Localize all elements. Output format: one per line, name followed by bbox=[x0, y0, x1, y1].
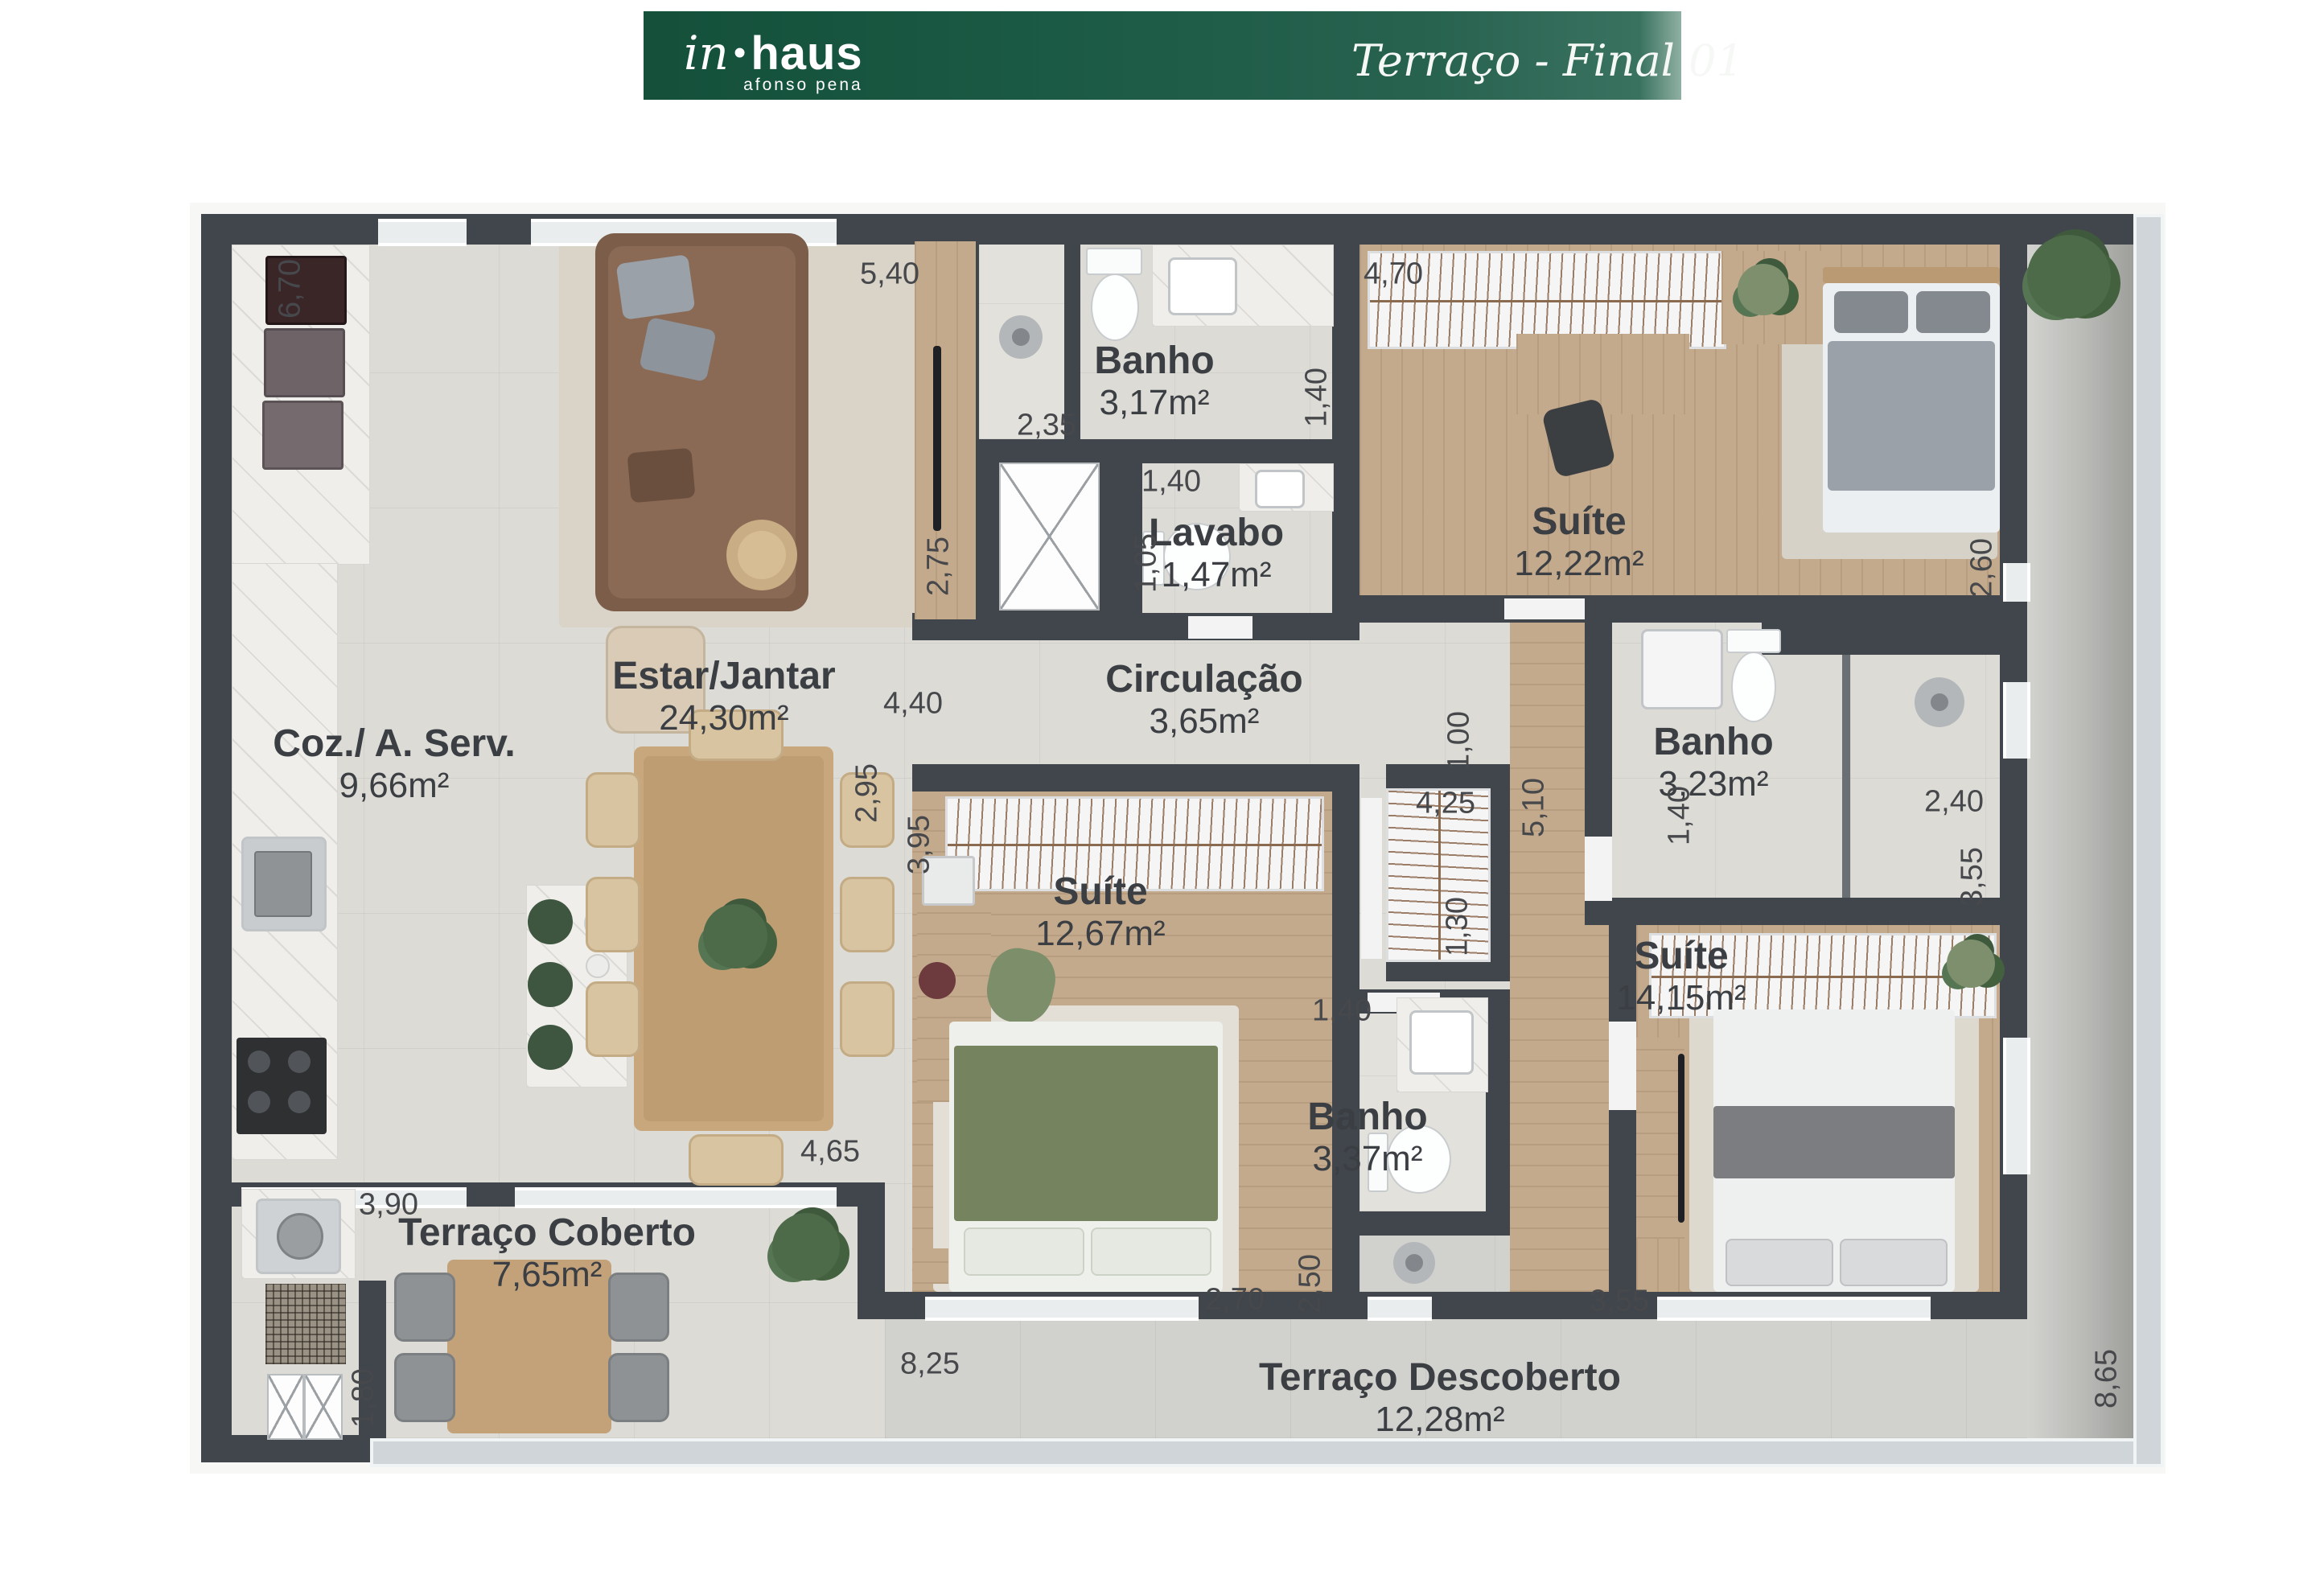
sliding-door bbox=[515, 1187, 837, 1208]
wall bbox=[1359, 595, 2000, 623]
dimension-label: 6,70 bbox=[274, 259, 308, 319]
room-label-bath3: Banho 3,37m² bbox=[1307, 1096, 1427, 1179]
room-label-suite2: Suíte 12,67m² bbox=[1035, 870, 1165, 954]
nightstand bbox=[913, 1248, 948, 1284]
bath2-sink bbox=[1641, 629, 1723, 709]
pocket-door bbox=[1361, 798, 1382, 959]
wall bbox=[1359, 1211, 1510, 1236]
dining-chair bbox=[840, 877, 895, 952]
sliding-door bbox=[925, 1297, 1199, 1321]
dimension-label: 1,40 bbox=[1141, 465, 1201, 500]
side-balcony-floor bbox=[2027, 245, 2133, 1438]
room-area: 3,65m² bbox=[1105, 701, 1302, 742]
room-label-open-terrace: Terraço Descoberto 12,28m² bbox=[1259, 1356, 1621, 1440]
tableware bbox=[586, 954, 610, 978]
wall bbox=[1762, 623, 2000, 655]
plant bbox=[1738, 264, 1789, 315]
door-opening bbox=[1609, 1022, 1636, 1110]
bath3-sink bbox=[1409, 1010, 1474, 1075]
dimension-label: 2,75 bbox=[922, 537, 956, 596]
window bbox=[2003, 682, 2030, 759]
dimension-label: 2,50 bbox=[1294, 1254, 1328, 1314]
appliance bbox=[262, 401, 343, 470]
sofa-pillow bbox=[616, 254, 696, 320]
bed-pillow bbox=[1834, 291, 1908, 333]
tv bbox=[933, 346, 941, 531]
dimension-label: 1,40 bbox=[1300, 368, 1335, 427]
dimension-label: 3,95 bbox=[903, 815, 937, 874]
toilet bbox=[1726, 629, 1781, 653]
shower-head bbox=[1915, 677, 1964, 727]
bush-plant bbox=[772, 1213, 840, 1281]
door-opening bbox=[1585, 837, 1612, 901]
washer bbox=[265, 1284, 346, 1364]
room-area: 3,17m² bbox=[1094, 383, 1214, 423]
room-name: Coz./ A. Serv. bbox=[273, 722, 515, 766]
vase-plant bbox=[919, 962, 956, 999]
shower-drain bbox=[1012, 328, 1030, 346]
shower-head bbox=[1393, 1242, 1435, 1284]
wardrobe-rod bbox=[948, 844, 1322, 846]
desk bbox=[1516, 334, 1689, 414]
window bbox=[2003, 563, 2030, 602]
wall bbox=[201, 214, 232, 1462]
bar-stool bbox=[528, 899, 573, 944]
room-name: Lavabo bbox=[1149, 512, 1284, 555]
room-name: Banho bbox=[1094, 339, 1214, 383]
wall bbox=[1609, 1110, 1636, 1292]
dining-chair bbox=[689, 1134, 784, 1186]
wardrobe-rod bbox=[1370, 300, 1724, 302]
dimension-label: 2,35 bbox=[1017, 409, 1076, 443]
table-plant bbox=[703, 904, 767, 968]
sliding-door bbox=[1657, 1297, 1931, 1321]
dimension-label: 5,40 bbox=[860, 257, 919, 292]
bed-blanket bbox=[1828, 341, 1995, 491]
room-label-suite3: Suíte 14,15m² bbox=[1616, 935, 1746, 1018]
bed-headboard bbox=[1823, 267, 2000, 283]
room-label-living: Estar/Jantar 24,30m² bbox=[612, 655, 835, 738]
bed-pillow bbox=[1726, 1239, 1833, 1286]
bar-stool bbox=[528, 1025, 573, 1070]
bar-stool bbox=[528, 962, 573, 1007]
lavabo-sink bbox=[1255, 470, 1305, 508]
dimension-label: 2,95 bbox=[850, 763, 885, 823]
bed-pillow bbox=[1840, 1239, 1948, 1286]
room-area: 12,67m² bbox=[1035, 914, 1165, 954]
window bbox=[2003, 1038, 2030, 1174]
dimension-label: 1,40 bbox=[1663, 786, 1697, 845]
bed-pillow bbox=[964, 1227, 1084, 1276]
dimension-label: 1,00 bbox=[1442, 711, 1477, 771]
shower-drain bbox=[1405, 1254, 1423, 1272]
bed-pillow bbox=[1091, 1227, 1211, 1276]
dimension-label: 3,55 bbox=[1956, 847, 1990, 907]
burner bbox=[288, 1091, 311, 1113]
room-name: Suíte bbox=[1514, 500, 1643, 544]
shower-head bbox=[999, 315, 1043, 359]
room-label-circulation: Circulação 3,65m² bbox=[1105, 658, 1302, 742]
wall bbox=[1585, 898, 2000, 925]
burner bbox=[248, 1091, 270, 1113]
sofa-pillow bbox=[627, 448, 695, 504]
room-name: Banho bbox=[1307, 1096, 1427, 1139]
dimension-label: 4,65 bbox=[800, 1135, 860, 1170]
dimension-label: 2,60 bbox=[1965, 538, 2000, 598]
dining-chair bbox=[840, 981, 895, 1057]
wall bbox=[201, 214, 2140, 245]
burner bbox=[248, 1051, 270, 1073]
room-name: Terraço Descoberto bbox=[1259, 1356, 1621, 1400]
room-area: 24,30m² bbox=[612, 698, 835, 738]
shower-drain bbox=[1931, 693, 1948, 711]
room-area: 12,22m² bbox=[1514, 544, 1643, 584]
balcony-railing bbox=[2133, 214, 2164, 1467]
cooktop bbox=[237, 1038, 327, 1134]
bed-pillow bbox=[1916, 291, 1990, 333]
dining-chair bbox=[586, 981, 640, 1057]
dimension-label: 4,25 bbox=[1416, 787, 1475, 821]
dining-chair bbox=[586, 877, 640, 952]
room-area: 3,37m² bbox=[1307, 1139, 1427, 1179]
dimension-label: 1,30 bbox=[1441, 897, 1475, 956]
room-name: Circulação bbox=[1105, 658, 1302, 701]
tv-cabinet bbox=[1636, 1038, 1684, 1239]
wall bbox=[858, 1182, 885, 1319]
room-name: Estar/Jantar bbox=[612, 655, 835, 698]
wall bbox=[1332, 214, 1359, 640]
room-label-kitchen: Coz./ A. Serv. 9,66m² bbox=[273, 722, 515, 806]
dimension-label: 8,25 bbox=[900, 1347, 960, 1382]
dimension-label: 3,55 bbox=[1590, 1285, 1649, 1319]
room-area: 12,28m² bbox=[1259, 1400, 1621, 1440]
plant bbox=[1947, 940, 1995, 988]
dining-chair bbox=[586, 772, 640, 848]
balcony-plant bbox=[2027, 235, 2111, 319]
room-label-suite1: Suíte 12,22m² bbox=[1514, 500, 1643, 584]
page: in•haus afonso pena Terraço - Final 01 bbox=[0, 0, 2324, 1579]
wall bbox=[912, 764, 1332, 792]
bed-blanket bbox=[954, 1046, 1218, 1221]
bath1-sink bbox=[1168, 257, 1237, 315]
terrace-railing bbox=[370, 1438, 2140, 1467]
room-label-bath1: Banho 3,17m² bbox=[1094, 339, 1214, 423]
room-label-lavabo: Lavabo 1,47m² bbox=[1149, 512, 1284, 595]
dimension-label: 4,40 bbox=[883, 687, 943, 722]
dimension-label: 4,70 bbox=[1364, 257, 1423, 292]
laundry-sink-bowl bbox=[277, 1213, 323, 1260]
burner bbox=[288, 1051, 311, 1073]
room-area: 7,65m² bbox=[398, 1255, 696, 1295]
dimension-label: 1,05 bbox=[1129, 533, 1164, 593]
wall bbox=[1486, 989, 1510, 1236]
toilet bbox=[1086, 248, 1142, 275]
outdoor-chair bbox=[608, 1353, 669, 1422]
toilet-bowl bbox=[1091, 273, 1139, 341]
room-label-covered-terrace: Terraço Coberto 7,65m² bbox=[398, 1211, 696, 1295]
dimension-label: 3,90 bbox=[359, 1188, 418, 1223]
window bbox=[1368, 1297, 1432, 1321]
room-name: Terraço Coberto bbox=[398, 1211, 696, 1255]
door-opening bbox=[1188, 616, 1252, 639]
room-name: Suíte bbox=[1616, 935, 1746, 978]
room-area: 1,47m² bbox=[1149, 555, 1284, 595]
wall bbox=[1842, 655, 1850, 898]
wall bbox=[912, 613, 1359, 640]
floor-plan: Banho 3,17m² Lavabo 1,47m² Suíte 12,22m²… bbox=[0, 0, 2324, 1579]
door-opening bbox=[1504, 598, 1585, 619]
dimension-label: 5,10 bbox=[1517, 778, 1552, 837]
elevator-shaft bbox=[999, 463, 1100, 611]
toilet-bowl bbox=[1731, 652, 1776, 722]
duct-shaft bbox=[304, 1374, 343, 1440]
side-table-top bbox=[738, 531, 786, 579]
sink-bowl bbox=[254, 851, 312, 917]
room-name: Banho bbox=[1653, 721, 1773, 764]
duct-shaft bbox=[267, 1374, 304, 1440]
dimension-label: 2,40 bbox=[1924, 785, 1984, 820]
bed-blanket bbox=[1713, 1106, 1955, 1178]
tv bbox=[1678, 1054, 1684, 1223]
room-name: Suíte bbox=[1035, 870, 1165, 914]
window bbox=[378, 219, 467, 246]
room-area: 9,66m² bbox=[273, 766, 515, 806]
room-area: 14,15m² bbox=[1616, 978, 1746, 1018]
dimension-label: 8,65 bbox=[2090, 1349, 2125, 1408]
microwave bbox=[264, 328, 345, 397]
outdoor-chair bbox=[394, 1353, 455, 1422]
dimension-label: 2,70 bbox=[1205, 1283, 1265, 1318]
dimension-label: 1,80 bbox=[347, 1368, 381, 1428]
dimension-label: 1,40 bbox=[1312, 994, 1372, 1029]
